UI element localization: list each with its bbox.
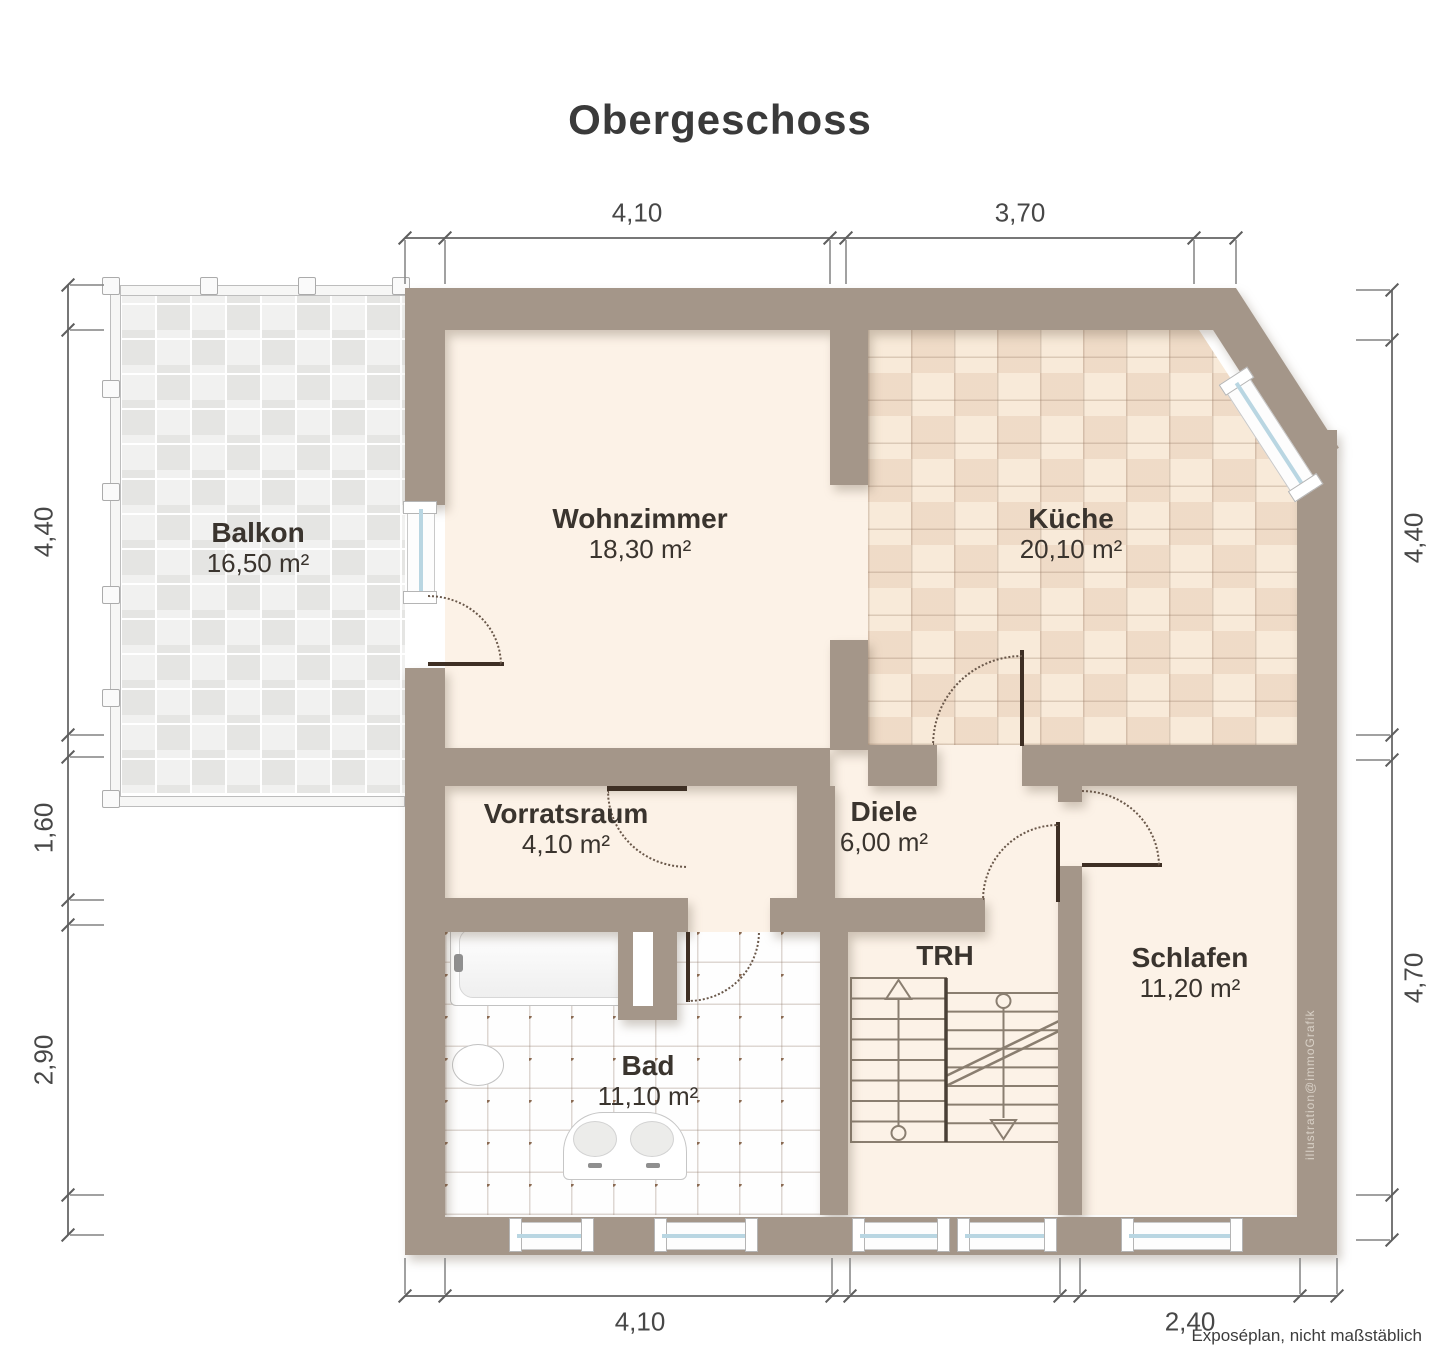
dim-guide [444,240,446,284]
room-label-trh: TRH [916,940,974,972]
room-name: TRH [916,940,974,972]
railing-post [102,586,120,604]
railing-post [102,380,120,398]
dim-line [67,285,69,1235]
dim-line [1391,290,1393,1240]
wall-schlafen-left [1058,866,1082,1215]
wall-bad-trh [820,898,848,1215]
room-name: Küche [1020,503,1123,535]
room-area: 4,10 m² [484,830,648,860]
railing-post [102,689,120,707]
room-name: Schlafen [1132,942,1249,974]
dim-guide [70,734,104,736]
dim-guide [404,240,406,284]
sink-basin [573,1121,617,1157]
dim-guide [1336,1258,1338,1294]
window-glass [662,1234,750,1238]
balcony-door-window [407,505,435,600]
room-area: 20,10 m² [1020,535,1123,565]
floor-plan-obergeschoss: Obergeschoss [0,0,1440,1363]
double-sink-vanity [563,1112,687,1180]
room-label-schlafen: Schlafen 11,20 m² [1132,942,1249,1004]
dim-guide [444,1258,446,1294]
dim-label-top-0: 4,10 [612,198,663,229]
balcony-railing-bottom [110,796,405,807]
sink-basin [630,1121,674,1157]
room-name: Wohnzimmer [552,503,727,535]
wall-kueche-diele-left [868,745,937,786]
dim-label-right-1: 4,70 [1399,953,1430,1004]
dim-guide [1356,1239,1390,1241]
room-label-diele: Diele 6,00 m² [840,796,928,858]
room-area: 18,30 m² [552,535,727,565]
dim-guide [829,240,831,284]
dim-guide [1299,1258,1301,1294]
wall-schlafen-stub [1058,786,1082,802]
dim-label-left-1: 1,60 [29,803,60,854]
dim-guide [1059,1258,1061,1294]
trh-window-1 [856,1222,946,1250]
wall-left-lower [405,668,445,1217]
dim-guide [70,284,104,286]
room-label-bad: Bad 11,10 m² [598,1050,699,1112]
window-glass [965,1234,1049,1238]
dim-guide [70,1194,104,1196]
dim-guide [1193,240,1195,284]
dim-guide [70,329,104,331]
dim-guide [70,899,104,901]
room-name: Diele [840,796,928,828]
room-area: 11,10 m² [598,1082,699,1112]
bad-partition-niche [633,932,653,1006]
wall-left-upper [405,288,445,505]
railing-post [102,483,120,501]
railing-post [102,790,120,808]
room-label-balkon: Balkon 16,50 m² [207,517,310,579]
watermark: illustration@immoGrafik [1303,1000,1317,1160]
dim-guide [70,924,104,926]
room-area: 6,00 m² [840,828,928,858]
window-glass [1129,1234,1235,1238]
dim-label-left-2: 2,90 [29,1035,60,1086]
bathtub-faucet-icon [454,954,463,972]
dim-label-left-0: 4,40 [29,507,60,558]
balcony-railing-left [110,285,121,807]
bathtub-inner [459,928,643,998]
dim-guide [70,756,104,758]
room-area: 16,50 m² [207,549,310,579]
bad-window-1 [513,1222,590,1250]
railing-post [298,277,316,295]
wall-vorratsraum-bad [445,898,688,932]
dim-line [405,237,1236,239]
caption: Exposéplan, nicht maßstäblich [1191,1326,1422,1346]
room-label-vorratsraum: Vorratsraum 4,10 m² [484,798,648,860]
wall-diele-trh [770,898,985,932]
staircase [846,975,1061,1147]
window-glass [419,509,423,596]
wall-wohnzimmer-vorratsraum [445,748,830,786]
dim-line [405,1295,1337,1297]
wall-vorratsraum-diele [797,786,835,898]
schlafen-window [1125,1222,1239,1250]
room-name: Balkon [207,517,310,549]
trh-window-2 [961,1222,1053,1250]
room-label-kueche: Küche 20,10 m² [1020,503,1123,565]
railing-post [200,277,218,295]
dim-label-top-1: 3,70 [995,198,1046,229]
dim-guide [845,240,847,284]
wall-kueche-schlafen [1022,745,1297,786]
window-glass [517,1234,586,1238]
dim-guide [1356,289,1390,291]
dim-guide [404,1258,406,1294]
dim-guide [1356,759,1390,761]
dim-guide [1356,1194,1390,1196]
room-label-wohnzimmer: Wohnzimmer 18,30 m² [552,503,727,565]
sink-faucet-icon [588,1163,602,1168]
wall-top [405,288,1236,330]
room-area: 11,20 m² [1132,974,1249,1004]
railing-post [102,277,120,295]
dim-guide [1079,1258,1081,1294]
toilet [452,1044,504,1086]
dim-guide [1356,734,1390,736]
wall-wohnzimmer-kueche-lower [830,640,868,750]
room-name: Vorratsraum [484,798,648,830]
balcony-railing-top [110,285,405,296]
dim-guide [849,1258,851,1294]
page-title: Obergeschoss [0,96,1440,144]
dim-label-bottom-0: 4,10 [615,1307,666,1338]
room-name: Bad [598,1050,699,1082]
dim-guide [831,1258,833,1294]
bad-window-2 [658,1222,754,1250]
window-glass [860,1234,942,1238]
wall-wohnzimmer-kueche-upper [830,330,868,485]
dim-guide [1235,240,1237,284]
dim-label-right-0: 4,40 [1399,513,1430,564]
dim-guide [70,1234,104,1236]
dim-guide [1356,339,1390,341]
sink-faucet-icon [646,1163,660,1168]
